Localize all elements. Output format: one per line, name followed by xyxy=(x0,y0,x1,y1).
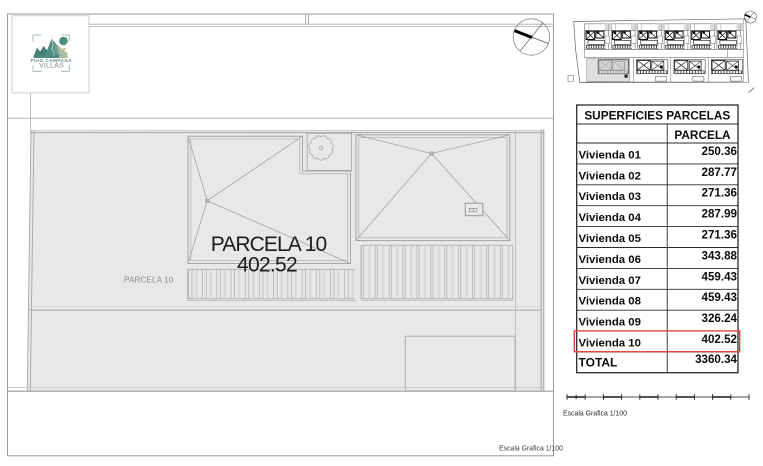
svg-text:TOTAL: TOTAL xyxy=(579,356,618,370)
svg-text:PARCELA: PARCELA xyxy=(674,128,731,142)
svg-text:VILLAS: VILLAS xyxy=(39,63,64,70)
svg-text:402.52: 402.52 xyxy=(237,254,297,277)
svg-text:271.36: 271.36 xyxy=(702,229,738,242)
svg-text:287.77: 287.77 xyxy=(702,166,737,179)
svg-text:PARCELA 10: PARCELA 10 xyxy=(124,275,174,284)
svg-text:271.36: 271.36 xyxy=(702,187,738,200)
svg-text:Vivienda 03: Vivienda 03 xyxy=(579,191,641,203)
svg-text:Vivienda 05: Vivienda 05 xyxy=(579,233,642,245)
svg-text:Vivienda 07: Vivienda 07 xyxy=(579,275,641,287)
svg-text:Vivienda 06: Vivienda 06 xyxy=(579,254,641,266)
svg-text:SUPERFICIES PARCELAS: SUPERFICIES PARCELAS xyxy=(584,109,730,123)
svg-text:Escala Grafica 1/100: Escala Grafica 1/100 xyxy=(563,410,627,417)
svg-text:287.99: 287.99 xyxy=(702,208,738,221)
svg-text:459.43: 459.43 xyxy=(702,270,738,283)
svg-text:Vivienda 08: Vivienda 08 xyxy=(579,296,641,308)
svg-text:Escala Grafica 1/100: Escala Grafica 1/100 xyxy=(499,446,563,453)
svg-text:Vivienda 02: Vivienda 02 xyxy=(579,170,641,182)
svg-text:343.88: 343.88 xyxy=(702,249,738,262)
svg-text:3360.34: 3360.34 xyxy=(695,353,737,366)
svg-text:250.36: 250.36 xyxy=(702,145,738,158)
svg-text:402.52: 402.52 xyxy=(702,333,737,346)
svg-text:Vivienda 09: Vivienda 09 xyxy=(579,317,641,329)
svg-text:Vivienda 01: Vivienda 01 xyxy=(579,149,642,161)
svg-text:Vivienda 10: Vivienda 10 xyxy=(579,338,641,350)
svg-text:Vivienda 04: Vivienda 04 xyxy=(579,212,642,224)
svg-text:326.24: 326.24 xyxy=(702,312,738,325)
svg-text:459.43: 459.43 xyxy=(702,291,738,304)
